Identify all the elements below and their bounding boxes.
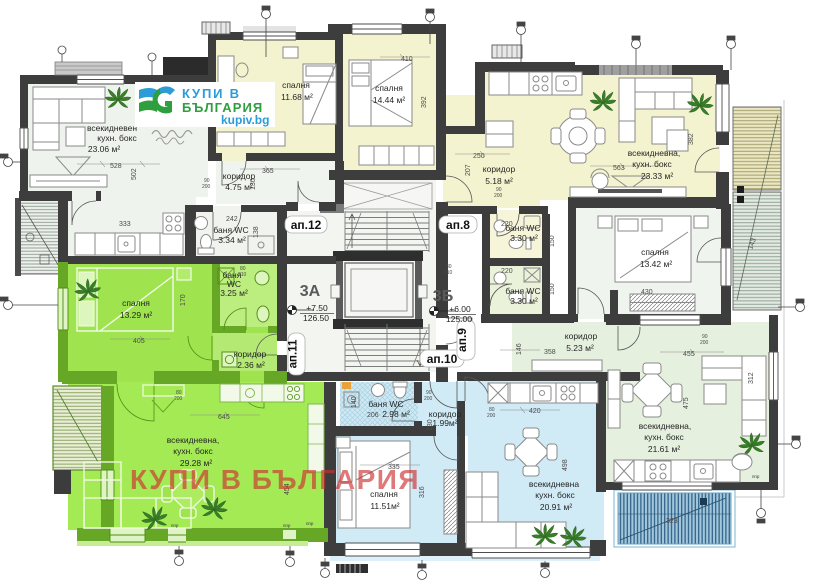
svg-text:20.91 м²: 20.91 м² [540, 502, 572, 512]
svg-text:475: 475 [683, 397, 690, 409]
svg-text:баня WC: баня WC [505, 223, 540, 233]
svg-text:кухн. бокс: кухн. бокс [173, 446, 213, 456]
svg-text:23.33 м²: 23.33 м² [641, 171, 673, 181]
svg-text:13.29 м²: 13.29 м² [120, 310, 152, 320]
svg-text:23.06 м²: 23.06 м² [88, 144, 120, 154]
svg-text:210: 210 [444, 270, 453, 276]
svg-text:2.98 м²: 2.98 м² [382, 409, 410, 419]
svg-text:всекидневен: всекидневен [87, 123, 137, 133]
svg-text:125.00: 125.00 [446, 314, 472, 324]
svg-text:13.42 м²: 13.42 м² [640, 259, 672, 269]
svg-text:14.44 м²: 14.44 м² [373, 95, 405, 105]
svg-text:382: 382 [688, 133, 695, 145]
svg-text:392: 392 [421, 96, 428, 108]
svg-text:206: 206 [367, 412, 379, 419]
svg-text:200: 200 [487, 413, 496, 419]
svg-text:146: 146 [516, 343, 523, 355]
svg-text:1.99м²: 1.99м² [432, 418, 457, 428]
svg-text:200: 200 [700, 340, 709, 346]
svg-text:всекидневна,: всекидневна, [639, 421, 692, 431]
svg-text:21.61 м²: 21.61 м² [648, 444, 680, 454]
svg-text:ппр: ппр [752, 474, 760, 479]
svg-text:спалня: спалня [122, 298, 150, 308]
svg-text:ап.9: ап.9 [455, 328, 469, 352]
svg-text:ппр: ппр [171, 523, 179, 528]
svg-text:ап.11: ап.11 [288, 339, 300, 368]
svg-text:+7.50: +7.50 [306, 303, 328, 313]
svg-text:316: 316 [419, 486, 426, 498]
svg-text:kupiv.bg: kupiv.bg [221, 113, 269, 127]
svg-text:спалня: спалня [282, 80, 310, 90]
svg-text:5.23 м²: 5.23 м² [566, 343, 594, 353]
svg-text:баня WC: баня WC [505, 286, 540, 296]
svg-text:ап.12: ап.12 [291, 218, 322, 232]
svg-text:323: 323 [666, 518, 678, 525]
svg-text:430: 430 [641, 289, 653, 296]
svg-text:3.30 м²: 3.30 м² [510, 296, 538, 306]
svg-text:3.25 м²: 3.25 м² [220, 288, 248, 298]
svg-text:спалня: спалня [641, 247, 669, 257]
svg-text:11.68 м²: 11.68 м² [281, 92, 313, 102]
svg-text:170: 170 [180, 294, 187, 306]
svg-text:200: 200 [424, 396, 433, 402]
svg-text:333: 333 [119, 221, 131, 228]
svg-text:КУПИ В: КУПИ В [182, 86, 241, 101]
svg-text:ап.8: ап.8 [446, 218, 470, 232]
svg-text:3Б: 3Б [433, 288, 453, 305]
svg-text:420: 420 [529, 408, 541, 415]
svg-text:баня WC: баня WC [213, 225, 248, 235]
svg-text:242: 242 [226, 216, 238, 223]
svg-text:3А: 3А [300, 283, 321, 300]
svg-text:150: 150 [549, 235, 556, 247]
svg-text:200: 200 [174, 396, 183, 402]
svg-text:коридор: коридор [565, 331, 598, 341]
svg-text:коридор: коридор [223, 171, 256, 181]
svg-text:спалня: спалня [375, 83, 403, 93]
svg-text:ап.10: ап.10 [427, 352, 458, 366]
svg-text:312: 312 [748, 372, 755, 384]
svg-text:200: 200 [202, 184, 211, 190]
svg-text:200: 200 [494, 193, 503, 199]
svg-text:+6.00: +6.00 [449, 304, 471, 314]
svg-text:ппр: ппр [283, 523, 291, 528]
svg-text:кухн. бокс: кухн. бокс [644, 432, 684, 442]
svg-text:3.30 м²: 3.30 м² [510, 233, 538, 243]
svg-text:498: 498 [562, 459, 569, 471]
svg-text:5.18 м²: 5.18 м² [485, 176, 513, 186]
svg-text:207: 207 [465, 164, 472, 176]
svg-text:358: 358 [544, 349, 556, 356]
svg-text:126.50: 126.50 [303, 313, 329, 323]
svg-text:коридор: коридор [234, 349, 267, 359]
svg-text:кухн. бокс: кухн. бокс [97, 133, 137, 143]
svg-text:всекидневна,: всекидневна, [628, 148, 681, 158]
svg-text:всекидневна: всекидневна [529, 479, 579, 489]
svg-text:3.34 м²: 3.34 м² [218, 235, 246, 245]
svg-text:баня WC: баня WC [368, 399, 403, 409]
svg-text:502: 502 [131, 168, 138, 180]
svg-text:коридор: коридор [483, 164, 516, 174]
svg-text:138: 138 [253, 226, 260, 238]
svg-text:150: 150 [549, 283, 556, 295]
svg-text:всекидневна,: всекидневна, [167, 435, 220, 445]
svg-text:4.75 м²: 4.75 м² [225, 182, 253, 192]
svg-text:кухн. бокс: кухн. бокс [632, 159, 672, 169]
svg-text:КУПИ В БЪЛГАРИЯ: КУПИ В БЪЛГАРИЯ [130, 464, 420, 495]
svg-text:11.51м²: 11.51м² [370, 501, 399, 511]
svg-text:220: 220 [501, 268, 513, 275]
svg-text:кухн. бокс: кухн. бокс [535, 490, 575, 500]
svg-text:ппр: ппр [306, 521, 314, 526]
svg-text:140: 140 [351, 396, 358, 408]
svg-text:2.36 м²: 2.36 м² [237, 360, 265, 370]
